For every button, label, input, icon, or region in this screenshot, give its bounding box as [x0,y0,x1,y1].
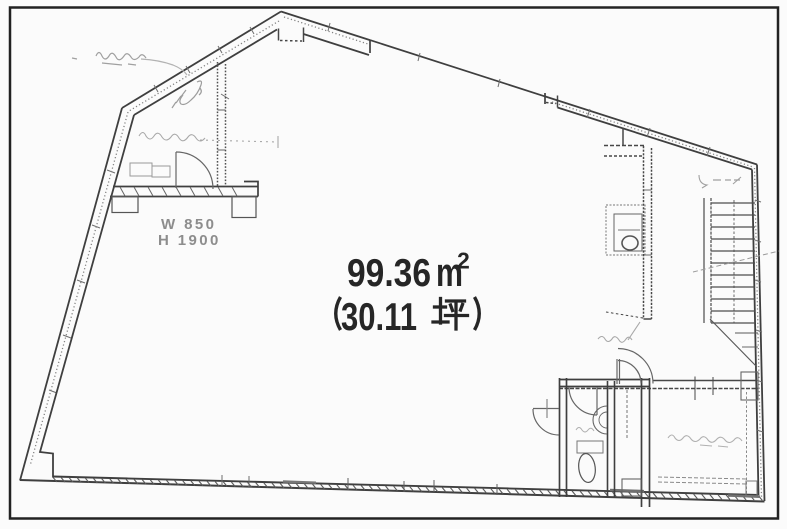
svg-text:2: 2 [457,248,470,274]
svg-text:30.11: 30.11 [341,296,417,339]
svg-text:99.36: 99.36 [347,252,431,295]
svg-text:W 850: W 850 [161,216,216,233]
svg-text:H 1900: H 1900 [158,232,221,249]
